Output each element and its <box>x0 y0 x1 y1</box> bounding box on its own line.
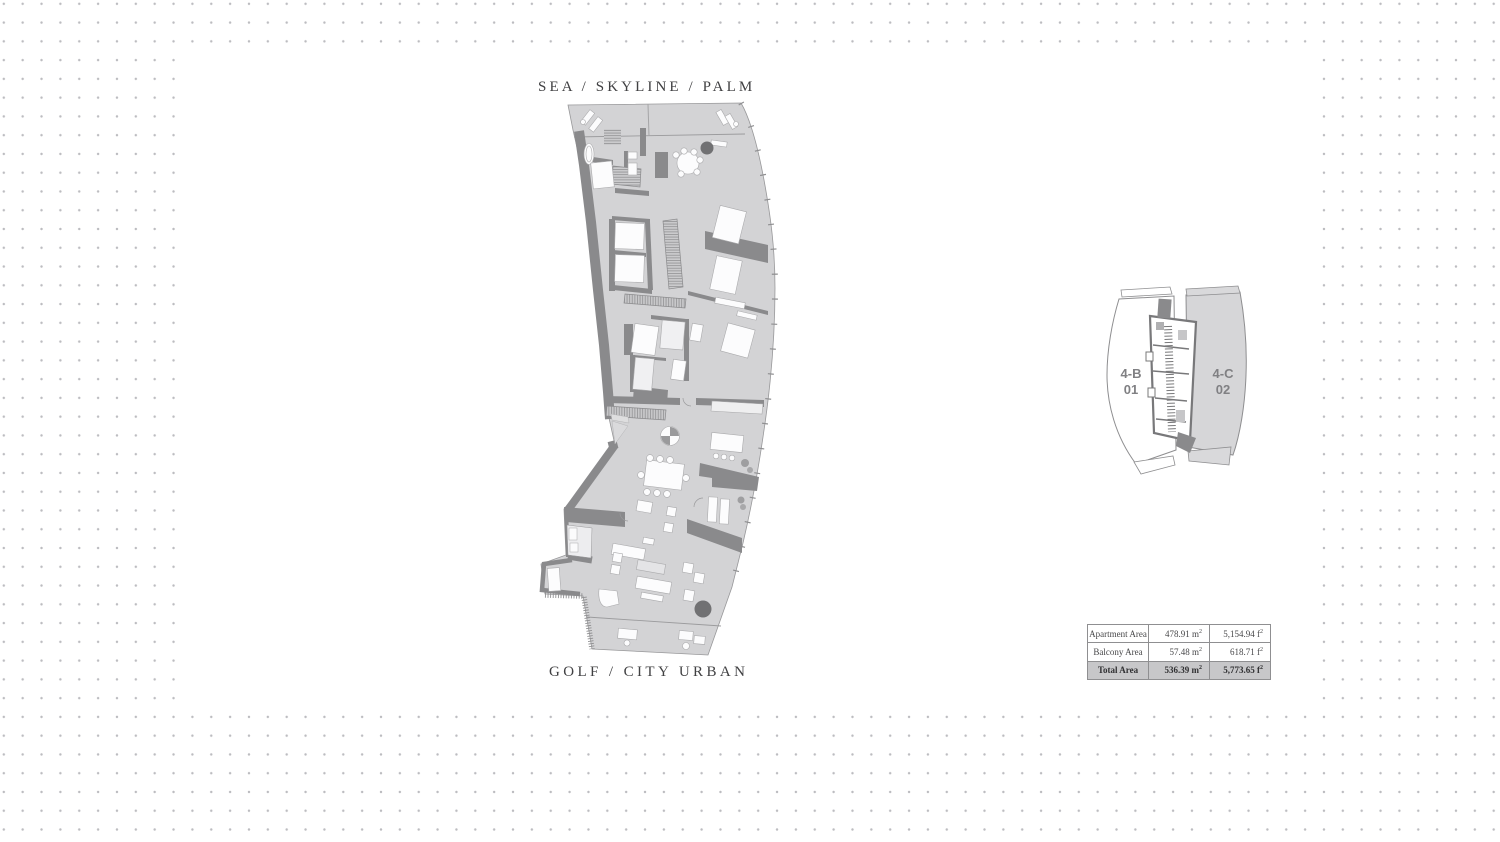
svg-text:4-B: 4-B <box>1121 366 1142 381</box>
svg-text:01: 01 <box>1124 382 1138 397</box>
svg-text:02: 02 <box>1216 382 1230 397</box>
svg-text:4-C: 4-C <box>1213 366 1235 381</box>
